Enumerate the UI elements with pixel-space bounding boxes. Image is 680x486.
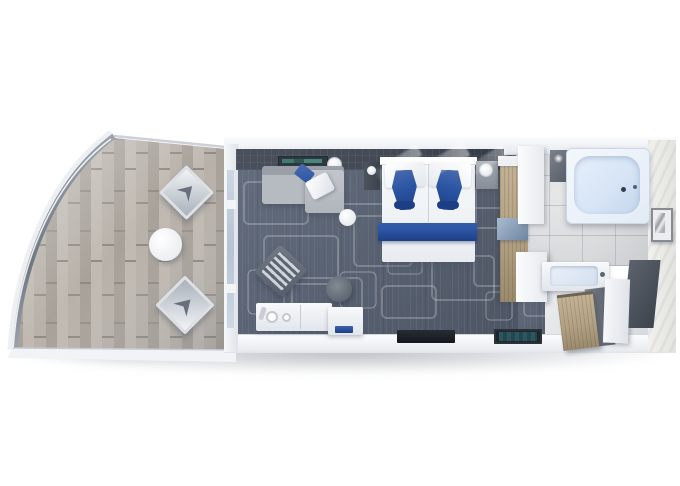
lounge-chair-cushion (168, 289, 201, 322)
sliding-glass-door (227, 170, 234, 328)
nightstand-right (476, 161, 498, 189)
entry-closet (557, 291, 600, 351)
entry-door (603, 279, 630, 344)
floorplan-render (0, 0, 680, 486)
blue-bed-runner (378, 223, 477, 241)
bathtub-drain (621, 187, 626, 192)
side-table (339, 209, 356, 226)
shower-light (554, 154, 563, 163)
bedside-lamp (480, 164, 492, 176)
console-divider (300, 305, 301, 329)
blue-lumbar-roll (394, 201, 415, 209)
bathtub-faucet (633, 185, 637, 189)
sink-basin (550, 266, 598, 286)
coffee-table (328, 307, 363, 335)
bathroom-storage-tower (518, 146, 544, 224)
balcony-divider-wall (224, 144, 238, 352)
door-mullion (226, 200, 236, 209)
glass (282, 313, 291, 322)
sink-faucet (600, 272, 605, 277)
picture-art (655, 213, 665, 233)
doormat-teal (494, 329, 542, 344)
balcony-round-table (149, 228, 182, 261)
bathtub-basin (574, 156, 640, 214)
blue-tray (335, 326, 353, 333)
nightstand-left (364, 162, 380, 190)
blue-lumbar-roll (437, 201, 459, 209)
balcony (0, 128, 250, 368)
door-mullion (226, 284, 236, 293)
lounge-chair-cushion (172, 177, 202, 207)
vanity-sink (542, 262, 609, 291)
doormat-teal-inner (499, 332, 537, 341)
bathtub (566, 148, 650, 224)
tv-screen (282, 159, 322, 163)
bedside-lamp (367, 166, 376, 175)
doormat-dark (397, 330, 455, 343)
glass (266, 311, 278, 323)
minibar-console (256, 303, 332, 331)
ottoman (326, 276, 352, 302)
wall-picture (651, 208, 673, 242)
